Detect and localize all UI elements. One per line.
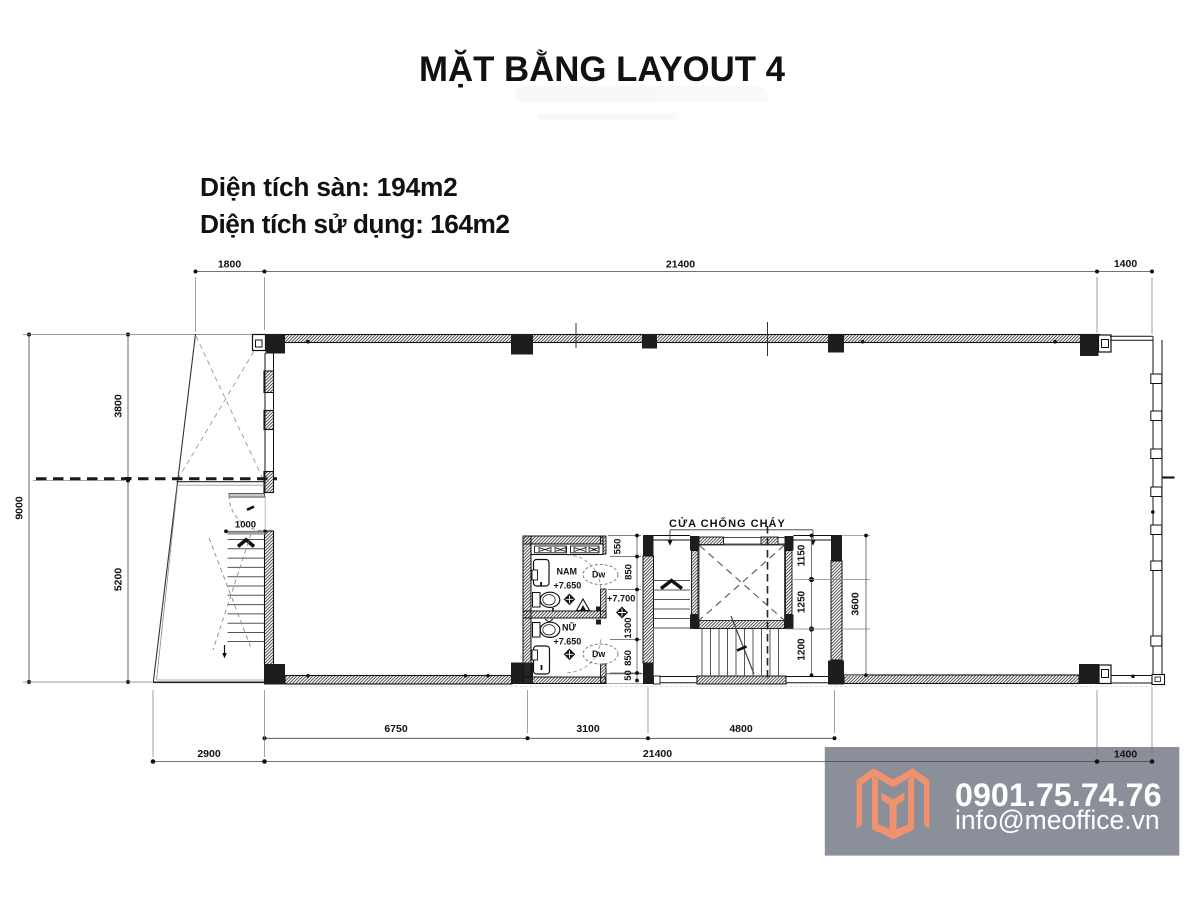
svg-text:1300: 1300 <box>623 617 634 638</box>
svg-text:NỮ: NỮ <box>562 623 576 633</box>
svg-text:2900: 2900 <box>197 748 221 760</box>
svg-text:1250: 1250 <box>797 590 808 613</box>
svg-text:NAM: NAM <box>557 567 578 577</box>
svg-text:Diện tích sàn: 194m2: Diện tích sàn: 194m2 <box>200 172 458 202</box>
svg-text:850: 850 <box>624 564 635 580</box>
svg-text:+7.650: +7.650 <box>554 637 582 647</box>
svg-text:1800: 1800 <box>218 259 242 271</box>
svg-text:3800: 3800 <box>113 394 125 418</box>
svg-text:21400: 21400 <box>666 259 695 271</box>
svg-text:1200: 1200 <box>797 638 808 661</box>
svg-text:3600: 3600 <box>850 592 862 616</box>
svg-text:Dw: Dw <box>592 570 605 580</box>
svg-text:1150: 1150 <box>797 544 808 566</box>
svg-text:3100: 3100 <box>576 723 600 735</box>
svg-text:CỬA CHỐNG CHÁY: CỬA CHỐNG CHÁY <box>669 516 786 530</box>
svg-text:1400: 1400 <box>1114 258 1138 270</box>
svg-text:1400: 1400 <box>1114 749 1138 761</box>
svg-text:Diện tích sử dụng: 164m2: Diện tích sử dụng: 164m2 <box>200 209 510 239</box>
svg-text:+7.650: +7.650 <box>554 581 582 591</box>
svg-text:850: 850 <box>623 650 634 666</box>
svg-text:5200: 5200 <box>113 568 125 592</box>
svg-text:info@meoffice.vn: info@meoffice.vn <box>955 805 1160 835</box>
svg-text:4800: 4800 <box>729 723 753 735</box>
svg-text:1000: 1000 <box>235 520 256 531</box>
svg-text:6750: 6750 <box>384 723 408 735</box>
svg-text:550: 550 <box>613 539 624 555</box>
svg-text:Dw: Dw <box>592 649 605 659</box>
svg-text:MẶT BẰNG LAYOUT 4: MẶT BẰNG LAYOUT 4 <box>419 49 786 89</box>
svg-text:+7.700: +7.700 <box>607 594 635 604</box>
svg-text:21400: 21400 <box>643 748 672 760</box>
svg-text:50: 50 <box>623 670 634 681</box>
svg-text:9000: 9000 <box>14 496 26 520</box>
